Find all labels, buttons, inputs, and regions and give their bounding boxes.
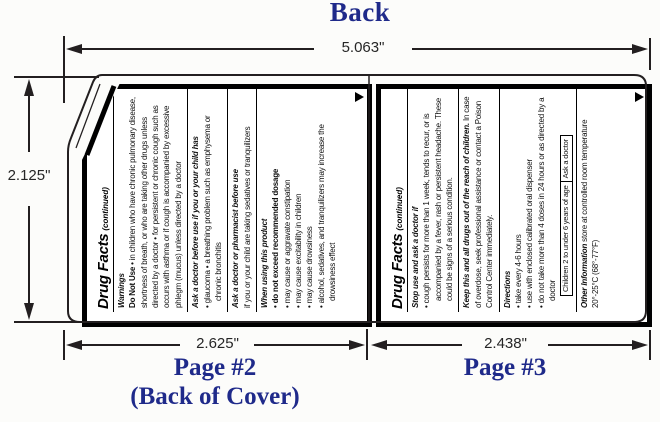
warnings-body: Do Not Use • in children who have chroni…: [127, 93, 184, 308]
keep-out-section: Keep this and all drugs out of the reach…: [459, 89, 499, 312]
when-using-bullet: • alcohol, sedatives, and tranquilizers …: [316, 93, 339, 308]
stop-use-heading: Stop use and ask a doctor if: [410, 93, 421, 308]
page3-rotated-content: Drug Facts (continued) Stop use and ask …: [381, 89, 637, 312]
drug-facts-heading: Drug Facts (continued): [87, 89, 114, 312]
when-using-bullet: • may cause or aggravate constipation: [282, 93, 293, 308]
continued-arrow-icon: [635, 92, 644, 102]
page2-width-dimension: 2.625": [180, 335, 255, 352]
directions-bullet: • take every 4-6 hours: [513, 93, 524, 308]
page2-rotated-content: Drug Facts (continued) Warnings Do Not U…: [87, 89, 357, 312]
when-using-bullet: • may cause excitability in children: [293, 93, 304, 308]
label-spec-sheet: Back Drug Facts (continued) Warnings Do …: [0, 0, 660, 422]
back-title: Back: [280, 0, 440, 28]
height-dimension: 2.125": [0, 167, 58, 184]
directions-section: Directions • take every 4-6 hours • use …: [500, 89, 577, 312]
drug-facts-continued: (continued): [101, 187, 112, 231]
drug-facts-title: Drug Facts: [95, 234, 112, 309]
when-using-heading: When using this product: [259, 93, 270, 308]
ask-pharmacist-heading: Ask a doctor or pharmacist before use: [230, 93, 241, 308]
drug-facts-heading: Drug Facts (continued): [381, 89, 408, 312]
ask-doctor-section: Ask a doctor before use if you or your c…: [188, 89, 228, 312]
ask-pharmacist-section: Ask a doctor or pharmacist before use if…: [228, 89, 257, 312]
ask-pharmacist-body: if you or your child are taking sedative…: [242, 93, 253, 308]
when-using-bullet: • do not exceed recommended dosage: [270, 93, 281, 308]
other-information-section: Other Information store at controlled ro…: [577, 89, 637, 312]
directions-bullet: • do not take more than 4 doses in 24 ho…: [536, 93, 559, 308]
directions-bullet: • use with enclosed calibrated oral disp…: [524, 93, 535, 308]
stop-use-section: Stop use and ask a doctor if • cough per…: [408, 89, 459, 312]
drug-facts-title: Drug Facts: [389, 234, 406, 309]
dosage-table-age-cell: Children 2 to under 6 years of age: [561, 181, 572, 295]
continued-arrow-icon: [355, 92, 364, 102]
total-width-dimension: 5.063": [318, 39, 408, 56]
page3-drug-facts-panel: Drug Facts (continued) Stop use and ask …: [376, 84, 652, 327]
keep-out-body: Keep this and all drugs out of the reach…: [461, 93, 495, 308]
when-using-bullet: • may cause drowsiness: [304, 93, 315, 308]
warnings-section: Warnings Do Not Use • in children who ha…: [114, 89, 188, 312]
page2-sublabel: (Back of Cover): [115, 383, 315, 411]
dosage-table: Children 2 to under 6 years of age Ask a…: [560, 135, 573, 296]
ask-doctor-heading: Ask a doctor before use if you or your c…: [190, 93, 201, 308]
directions-heading: Directions: [502, 93, 513, 308]
warnings-heading: Warnings: [116, 93, 127, 308]
other-information-body: Other Information store at controlled ro…: [579, 93, 602, 308]
stop-use-body: • cough persists for more than 1 week, t…: [421, 93, 455, 308]
page3-width-dimension: 2.438": [468, 335, 543, 352]
when-using-section: When using this product • do not exceed …: [257, 89, 357, 312]
page2-drug-facts-panel: Drug Facts (continued) Warnings Do Not U…: [82, 84, 372, 327]
page2-label: Page #2: [115, 354, 315, 382]
ask-doctor-body: • glaucoma • a breathing problem such as…: [202, 93, 225, 308]
dosage-table-dose-cell: Ask a doctor: [561, 136, 572, 181]
page3-label: Page #3: [405, 354, 605, 382]
drug-facts-continued: (continued): [395, 187, 406, 231]
